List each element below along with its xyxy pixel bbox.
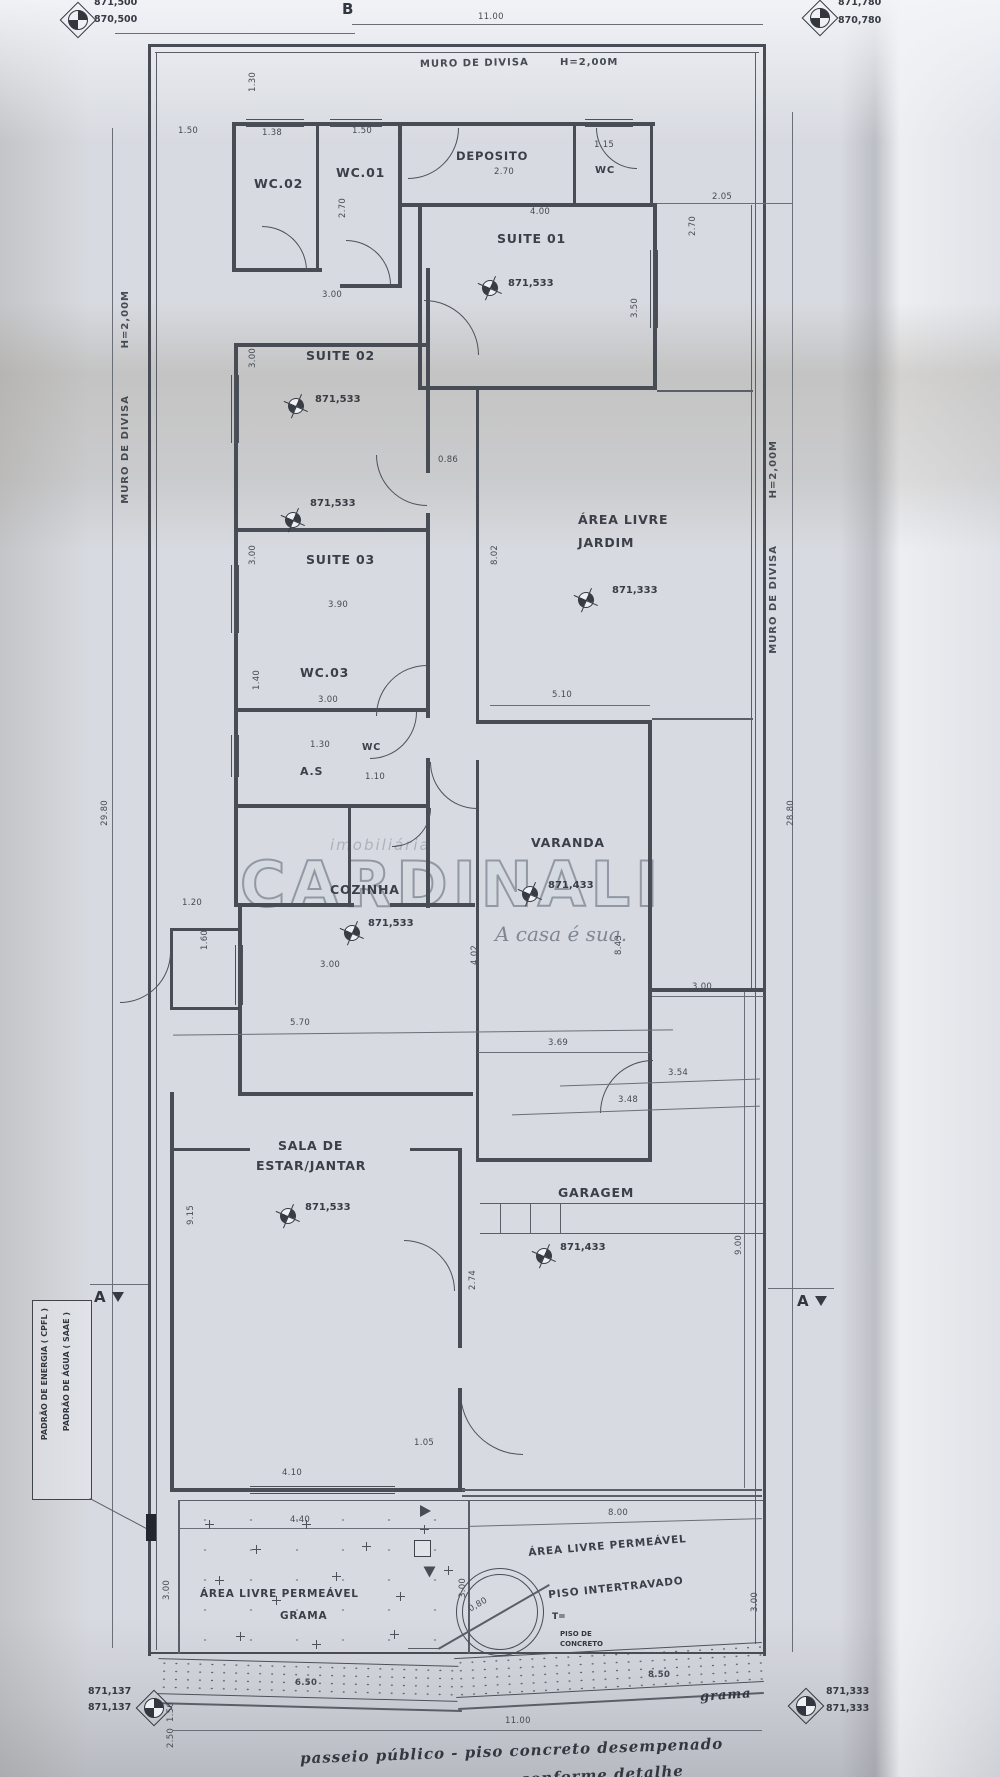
window: [246, 119, 304, 128]
room-label-wc01: WC.01: [336, 165, 385, 180]
grass-symbol: [420, 1525, 429, 1534]
dim-label: 3.48: [618, 1095, 638, 1105]
muro-label: H=2,00M: [560, 57, 618, 68]
gate-line: [462, 1495, 762, 1497]
gate-line: [462, 1489, 762, 1491]
dim-label: 28.80: [786, 800, 796, 826]
room-dim: 2.70: [494, 167, 514, 177]
dim-line: [115, 33, 355, 34]
area-label-grama: ÁREA LIVRE PERMEÁVEL: [200, 1588, 359, 1600]
porch-line: [178, 1500, 763, 1501]
garden-edge: [657, 390, 753, 392]
benchmark-icon: [810, 8, 830, 28]
passeio-note2: conforme detalhe: [520, 1762, 685, 1777]
leader-line: [408, 1648, 440, 1649]
muro-label: H=2,00M: [120, 290, 131, 348]
dim-label: 6.50: [295, 1678, 317, 1688]
door-arc: [424, 300, 479, 355]
wall: [573, 122, 576, 207]
room-label-suite02: SUITE 02: [306, 348, 375, 363]
benchmark-value: 870,500: [94, 14, 137, 25]
dim-line: [478, 1052, 650, 1053]
wall: [170, 928, 173, 1010]
garden-edge: [652, 718, 753, 720]
section-marker-a-left: A: [94, 1288, 106, 1306]
gate-symbol: [420, 1505, 431, 1517]
benchmark-icon: [68, 10, 88, 30]
room-label-sala2: ESTAR/JANTAR: [256, 1158, 366, 1173]
door-arc: [376, 455, 427, 506]
boundary-wall: [155, 52, 759, 53]
dim-label: 3.00: [692, 982, 712, 992]
wall: [418, 386, 657, 390]
room-dim: 1.15: [594, 140, 614, 150]
wall: [410, 1148, 462, 1151]
room-dim: 1.10: [365, 772, 385, 782]
room-label-jardim2: JARDIM: [578, 535, 634, 550]
wall: [170, 1092, 174, 1492]
benchmark-value: 871,333: [826, 1686, 869, 1697]
room-label-wc02: WC.02: [254, 176, 303, 191]
level-marker-icon: [576, 590, 597, 611]
dim-label: 8.50: [648, 1670, 670, 1680]
door-arc: [404, 1240, 455, 1291]
section-marker-b: B: [342, 0, 353, 18]
level-marker-icon: [534, 1246, 555, 1267]
wall: [458, 1148, 462, 1348]
wall: [650, 122, 653, 207]
step-line: [500, 1203, 501, 1233]
dim-line: [652, 996, 764, 997]
door-arc: [120, 952, 171, 1003]
dim-label: 3.50: [630, 298, 640, 318]
utility-note-agua: PADRÃO DE ÁGUA ( SAAE ): [62, 1312, 71, 1431]
muro-label: MURO DE DIVISA: [120, 395, 131, 504]
dim-label: 1.60: [200, 930, 210, 950]
room-label-as: A.S: [300, 765, 323, 778]
grass-symbol: [215, 1576, 224, 1585]
grass-symbol: [252, 1545, 261, 1554]
dim-label: 1.05: [414, 1438, 434, 1448]
dim-label: 3.00: [322, 290, 342, 300]
area-label-intertravado: ÁREA LIVRE PERMEÁVEL: [528, 1533, 687, 1559]
dim-line: [792, 112, 793, 1652]
benchmark-value: 871,137: [88, 1686, 131, 1697]
setback-line: [751, 205, 752, 990]
window: [585, 119, 633, 128]
dim-label: 8.02: [490, 545, 500, 565]
wall: [170, 1148, 250, 1151]
dim-label: 3.54: [668, 1068, 688, 1078]
dim-label: 9.00: [734, 1235, 744, 1255]
room-label-sala: SALA DE: [278, 1138, 343, 1153]
watermark-tagline: A casa é sua.: [495, 922, 627, 946]
wall: [234, 528, 430, 532]
dim-line: [470, 1518, 762, 1527]
wall: [426, 758, 430, 908]
boundary-wall: [148, 44, 151, 1656]
benchmark-value: 871,780: [838, 0, 881, 8]
boundary-wall: [156, 52, 157, 1650]
room-label-cozinha: COZINHA: [330, 882, 400, 897]
step-line: [530, 1203, 531, 1233]
window: [231, 565, 240, 633]
level-value: 871,533: [508, 278, 554, 289]
section-line: [768, 1288, 834, 1289]
dim-label: 8.43: [614, 935, 624, 955]
wall: [402, 203, 656, 207]
wall: [234, 806, 238, 906]
grama-note: grama: [700, 1686, 752, 1705]
level-value: 871,533: [305, 1202, 351, 1213]
door-arc: [262, 226, 307, 271]
grass-symbol: [312, 1640, 321, 1649]
room-label-jardim: ÁREA LIVRE: [578, 512, 668, 527]
room-label-varanda: VARANDA: [531, 835, 605, 850]
utility-note-energia: PADRÃO DE ENERGIA ( CPFL ): [40, 1308, 49, 1440]
dim-label: 11.00: [478, 12, 504, 22]
step-line: [480, 1233, 763, 1234]
level-value: 871,533: [368, 918, 414, 929]
tree-note: T=: [552, 1612, 566, 1622]
window: [235, 945, 244, 1005]
window: [231, 735, 240, 777]
wall: [476, 1158, 652, 1162]
level-value: 871,433: [560, 1242, 606, 1253]
grass-symbol: [444, 1566, 453, 1575]
level-value: 871,433: [548, 880, 594, 891]
grass-symbol: [362, 1542, 371, 1551]
dim-line: [173, 1029, 673, 1035]
dim-label: 1.38: [262, 128, 282, 138]
dim-label: 3.90: [328, 600, 348, 610]
door-arc: [600, 1060, 653, 1113]
step-line: [480, 1203, 763, 1204]
level-marker-icon: [480, 278, 501, 299]
muro-label: MURO DE DIVISA: [768, 545, 779, 654]
dim-label: 3.00: [162, 1580, 172, 1600]
fence-line: [178, 1500, 180, 1654]
wall: [234, 903, 354, 907]
dim-label: 1.40: [252, 670, 262, 690]
benchmark-value: 871,137: [88, 1702, 131, 1713]
dim-line: [657, 203, 792, 204]
dim-label: 1.20: [182, 898, 202, 908]
utility-entry-marker: [146, 1514, 156, 1541]
dim-label: 3.00: [318, 695, 338, 705]
tree-note: CONCRETO: [560, 1640, 603, 1648]
dim-line: [490, 705, 650, 706]
section-triangle: [112, 1292, 124, 1302]
dim-line: [560, 1079, 760, 1087]
area-label-intertravado2: PISO INTERTRAVADO: [548, 1575, 684, 1601]
boundary-wall: [755, 52, 756, 1644]
wall: [316, 122, 319, 272]
door-arc: [430, 762, 477, 809]
watermark-brand: CARDINALI: [240, 848, 663, 921]
benchmark-value: 871,333: [826, 1703, 869, 1714]
dim-line: [744, 992, 745, 1488]
level-marker-icon: [342, 923, 363, 944]
meter-box-symbol: [414, 1540, 431, 1557]
grass-symbol: [390, 1630, 399, 1639]
dim-label: 3.00: [750, 1592, 760, 1612]
dim-label: 2.05: [712, 192, 732, 202]
dim-label: 2.70: [688, 216, 698, 236]
dim-line: [172, 1730, 762, 1731]
benchmark-icon: [144, 1698, 164, 1718]
window: [250, 1486, 395, 1495]
dim-label: 2.74: [468, 1270, 478, 1290]
level-value: 871,533: [315, 394, 361, 405]
wall: [476, 720, 652, 724]
dim-label: 3.00: [248, 545, 258, 565]
grass-symbol: [332, 1572, 341, 1581]
section-line: [90, 1284, 148, 1285]
grass-symbol: [302, 1520, 311, 1529]
wall: [426, 268, 430, 473]
tree-note: PISO DE: [560, 1630, 592, 1638]
wall: [418, 207, 422, 390]
step-line: [560, 1203, 561, 1233]
room-label-suite01: SUITE 01: [497, 231, 566, 246]
dim-label: 1.50: [178, 126, 198, 136]
level-marker-icon: [278, 1206, 299, 1227]
room-label-deposito: DEPOSITO: [456, 149, 528, 163]
street-line: [152, 1702, 462, 1712]
grass-symbol: [396, 1592, 405, 1601]
dim-label: 5.10: [552, 690, 572, 700]
boundary-wall: [763, 44, 766, 1656]
dim-label: 4.02: [470, 945, 480, 965]
room-label-garagem: GARAGEM: [558, 1185, 634, 1200]
muro-label: MURO DE DIVISA: [420, 57, 529, 70]
room-label-suite03: SUITE 03: [306, 552, 375, 567]
dim-label: 11.00: [505, 1716, 531, 1726]
boundary-wall: [148, 44, 766, 47]
wall: [238, 1092, 473, 1096]
section-triangle: [815, 1296, 827, 1306]
wall: [390, 903, 475, 907]
window: [231, 375, 240, 443]
dim-label: 1.30: [310, 740, 330, 750]
dim-label: 9.15: [186, 1205, 196, 1225]
dim-label: 1.30: [248, 72, 258, 92]
gate-symbol: [424, 1567, 436, 1578]
dim-label: 8.00: [608, 1508, 628, 1518]
wall: [476, 390, 479, 720]
dim-line: [352, 24, 763, 25]
dim-label: 3.69: [548, 1038, 568, 1048]
dim-label: 4.00: [530, 207, 550, 217]
dim-line: [112, 128, 113, 1648]
benchmark-icon: [796, 1696, 816, 1716]
level-value: 871,333: [612, 585, 658, 596]
wall: [234, 343, 430, 347]
dim-label: 4.10: [282, 1468, 302, 1478]
dim-label: 29.80: [100, 800, 110, 826]
area-label-grama2: GRAMA: [280, 1610, 327, 1622]
section-marker-a-right: A: [797, 1292, 809, 1310]
dim-label: 3.00: [320, 960, 340, 970]
dim-label: 2.70: [338, 198, 348, 218]
room-label-wc03: WC.03: [300, 665, 349, 680]
door-arc: [346, 240, 391, 285]
door-arc: [408, 128, 459, 179]
door-arc: [460, 1392, 523, 1455]
window: [650, 250, 659, 328]
wall: [232, 122, 236, 272]
dim-label: 1.50: [352, 126, 372, 136]
level-value: 871,533: [310, 498, 356, 509]
dim-label: 5.70: [290, 1018, 310, 1028]
dim-label: 3.00: [248, 348, 258, 368]
dim-label: 0.86: [438, 455, 458, 465]
wall: [170, 1007, 240, 1010]
benchmark-value: 871,500: [94, 0, 137, 8]
benchmark-value: 870,780: [838, 15, 881, 26]
room-label-wc-top: WC: [595, 165, 615, 176]
room-label-wc-mid: WC: [362, 742, 381, 753]
muro-label: H=2,00M: [768, 440, 779, 498]
level-marker-icon: [286, 396, 307, 417]
floor-plan: imobiliária CARDINALI A casa é sua. 871,…: [0, 0, 1000, 1777]
grass-symbol: [236, 1632, 245, 1641]
grass-symbol: [205, 1520, 214, 1529]
door-arc: [376, 665, 427, 716]
